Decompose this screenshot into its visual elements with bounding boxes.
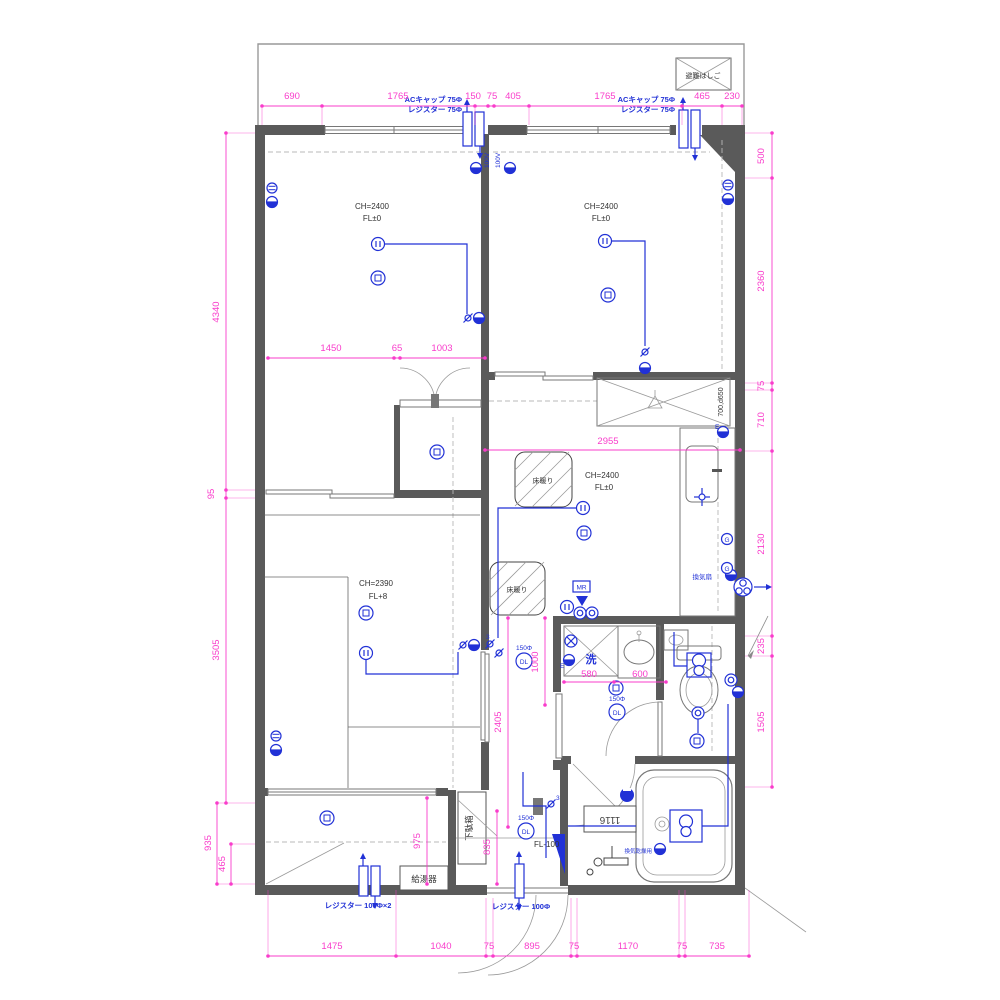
fridge-size-label: 700,d650 xyxy=(718,387,725,416)
washer-mark: 洗 xyxy=(586,652,597,666)
junction-icon xyxy=(574,607,586,619)
floor-plan-drawing: 避難はしご xyxy=(0,0,1000,1000)
dim-bl-1: 65 xyxy=(392,343,403,354)
register75-label: レジスター 75Φ xyxy=(408,104,462,114)
dim-left-0: 4340 xyxy=(211,301,222,322)
ceiling-rose-icon xyxy=(577,502,590,515)
svg-text:DL: DL xyxy=(522,829,531,836)
register100x2-label: レジスター 100Φ×2 xyxy=(325,900,392,910)
svg-text:DL: DL xyxy=(613,710,622,717)
dim-washroom-0: 580 xyxy=(581,669,597,680)
dim-washroom-1: 600 xyxy=(632,669,648,680)
junction-icon xyxy=(561,601,574,614)
switch-icon xyxy=(464,314,473,323)
dim-bottom-4: 75 xyxy=(569,941,580,952)
bath-dryer-fan-icon xyxy=(680,815,693,837)
tub-size-tag: 1116 xyxy=(584,806,636,832)
wiring-bath-2 xyxy=(702,704,728,826)
ceiling-light-icon xyxy=(609,681,623,695)
range-fan-icon xyxy=(734,578,772,596)
dim-top-6: 465 xyxy=(694,91,710,102)
mr-label: MR xyxy=(576,585,586,592)
ldk-ch: CH=2400 xyxy=(585,471,620,480)
outlet-icon xyxy=(564,655,575,666)
wiring-japanese xyxy=(366,652,458,674)
floor-heating-label: 床暖り xyxy=(533,476,554,485)
floor-heating-panel-1: 床暖り xyxy=(515,452,572,507)
dim-hall: 1000 xyxy=(530,651,541,672)
dim-left-1: 95 xyxy=(206,489,217,500)
ceiling-light-icon xyxy=(601,288,615,302)
water-heater: 給湯器 xyxy=(400,866,448,890)
dim-right-5: 235 xyxy=(756,638,767,654)
porch-slope-line xyxy=(266,843,344,884)
three-way-label: 3 xyxy=(556,795,560,802)
svg-text:150Φ: 150Φ xyxy=(609,696,625,703)
downlight: 150Φ DL xyxy=(609,696,625,720)
bedroom-left-fl: FL±0 xyxy=(363,214,382,223)
balcony-slope-line xyxy=(745,888,806,932)
ceiling-rose-icon xyxy=(372,238,385,251)
balcony: 避難はしご xyxy=(258,44,806,932)
outlet-icon xyxy=(723,180,733,190)
wiring-bedroom-left xyxy=(381,244,467,314)
dim-top-7: 230 xyxy=(724,91,740,102)
dim-entry: 835 xyxy=(482,839,493,855)
dim-bottom-2: 75 xyxy=(484,941,495,952)
volt-label: 100V xyxy=(495,152,502,168)
exhaust-point-icon xyxy=(692,707,704,719)
switch-icon xyxy=(641,348,650,357)
ceiling-light-icon xyxy=(690,734,704,748)
entrance-fl: FL-100 xyxy=(534,840,560,849)
volt-label: 100V xyxy=(484,152,491,168)
bedroom-left-ch: CH=2400 xyxy=(355,202,390,211)
junction-icon xyxy=(586,607,598,619)
toilet-fan-icon xyxy=(693,654,706,676)
bedroom-right-ch: CH=2400 xyxy=(584,202,619,211)
ac-outlet-icon xyxy=(471,163,482,174)
ceiling-rose-icon xyxy=(360,647,373,660)
dim-right-2: 75 xyxy=(756,381,767,392)
outlet-icon xyxy=(267,197,278,208)
outlet-icon xyxy=(723,194,734,205)
closet-double-door xyxy=(400,368,481,408)
dim-right-6: 1505 xyxy=(756,711,767,732)
gas-label: G xyxy=(724,566,729,573)
dim-top-4: 405 xyxy=(505,91,521,102)
closet-wall xyxy=(394,405,400,490)
tub-size-label: 1116 xyxy=(599,814,620,825)
dim-bottom-6: 75 xyxy=(677,941,688,952)
dim-top-1: 1765 xyxy=(387,91,408,102)
switch-icon xyxy=(547,800,556,809)
svg-text:150Φ: 150Φ xyxy=(518,815,534,822)
switch-icon xyxy=(495,649,504,658)
bath-mixer xyxy=(587,846,628,875)
escape-hatch-label: 避難はしご xyxy=(686,71,721,80)
dim-right-4: 2130 xyxy=(756,533,767,554)
ac-outlet-icon xyxy=(505,163,516,174)
outlet-icon xyxy=(655,844,666,855)
ceiling-light-icon xyxy=(320,811,334,825)
kitchen-counter xyxy=(680,428,735,616)
ceiling-rose-icon xyxy=(599,235,612,248)
walls xyxy=(255,125,745,895)
ceiling-light-icon xyxy=(577,526,591,540)
ac-cap-label: ACキャップ 75Φ xyxy=(618,94,675,104)
dim-top-0: 690 xyxy=(284,91,300,102)
earth-label: E xyxy=(715,424,720,431)
floor-heating-label: 床暖り xyxy=(507,585,528,594)
register75-label: レジスター 75Φ xyxy=(621,104,675,114)
refrigerator-space xyxy=(597,378,730,426)
exhaust-point-icon xyxy=(725,674,737,686)
downlight: 150Φ DL xyxy=(518,815,534,839)
sliding-door-japanese-top xyxy=(266,490,394,498)
dim-top-3: 75 xyxy=(487,91,498,102)
wiring-toilet xyxy=(674,632,687,666)
outlet-icon xyxy=(271,745,282,756)
wiring-bedroom-right xyxy=(612,241,645,346)
svg-text:DL: DL xyxy=(520,659,529,666)
dim-bl-2: 1003 xyxy=(431,343,452,354)
ceiling-light-icon xyxy=(371,271,385,285)
ac-cap-label: ACキャップ 75Φ xyxy=(405,94,462,104)
dim-right-3: 710 xyxy=(756,412,767,428)
outlet-icon xyxy=(474,313,485,324)
three-way-label: 3 xyxy=(486,634,490,641)
ceiling-light-icon xyxy=(359,606,373,620)
dim-bottom-5: 1170 xyxy=(618,941,638,952)
dim-bottom-1: 1040 xyxy=(430,941,451,952)
dim-left-3: 935 xyxy=(203,835,214,851)
bath-dryer-label: 換気乾燥用 xyxy=(624,847,652,855)
outlet-icon xyxy=(267,183,277,193)
floor-plan-sheet: 避難はしご xyxy=(0,0,1000,1000)
dim-bottom-0: 1475 xyxy=(321,941,342,952)
register100-label: レジスター 100Φ xyxy=(492,901,550,911)
dim-top-5: 1765 xyxy=(594,91,615,102)
dim-bottom-3: 895 xyxy=(524,941,540,952)
earth-label: E xyxy=(560,663,565,670)
outlet-icon xyxy=(733,687,744,698)
dim-porch: 975 xyxy=(412,833,423,849)
center-partition-wall xyxy=(481,134,489,650)
dim-bl-0: 1450 xyxy=(320,343,341,354)
svg-text:150Φ: 150Φ xyxy=(516,645,532,652)
shoe-cabinet-label: 下駄箱 xyxy=(464,815,474,841)
dim-left-4: 465 xyxy=(217,856,228,872)
range-fan-label: 換気扇 xyxy=(693,572,713,581)
gas-label: G xyxy=(724,537,729,544)
washroom-door xyxy=(556,694,562,758)
escape-hatch: 避難はしご xyxy=(676,58,731,90)
ldk-fl: FL±0 xyxy=(595,483,614,492)
room-labels: CH=2400 FL±0 CH=2400 FL±0 CH=2400 FL±0 C… xyxy=(355,202,725,849)
dim-right-1: 2360 xyxy=(756,270,767,291)
fixtures: 床暖り 床暖り xyxy=(264,378,735,890)
ceiling-light-icon xyxy=(430,445,444,459)
dashed-lines xyxy=(266,140,722,842)
bedroom-right-fl: FL±0 xyxy=(592,214,611,223)
outlet-icon xyxy=(640,363,651,374)
japanese-fl: FL+8 xyxy=(369,592,388,601)
dim-left-2: 3505 xyxy=(211,639,222,660)
switch-icon xyxy=(459,641,468,650)
japanese-ch: CH=2390 xyxy=(359,579,394,588)
washer-waterproof-icon xyxy=(565,635,577,647)
shower-icon xyxy=(620,788,634,802)
dim-right-0: 500 xyxy=(756,148,767,164)
mr-sensor: MR xyxy=(573,581,590,606)
dim-top-2: 150 xyxy=(465,91,481,102)
corner-chamfer xyxy=(700,135,735,172)
sliding-door-japanese-corridor xyxy=(480,650,490,742)
dim-ldk-width: 2955 xyxy=(597,436,618,447)
water-heater-label: 給湯器 xyxy=(411,874,437,884)
dim-bottom-7: 735 xyxy=(709,941,725,952)
outlet-icon xyxy=(271,731,281,741)
outlet-icon xyxy=(469,640,480,651)
dim-corridor: 2405 xyxy=(493,711,504,732)
